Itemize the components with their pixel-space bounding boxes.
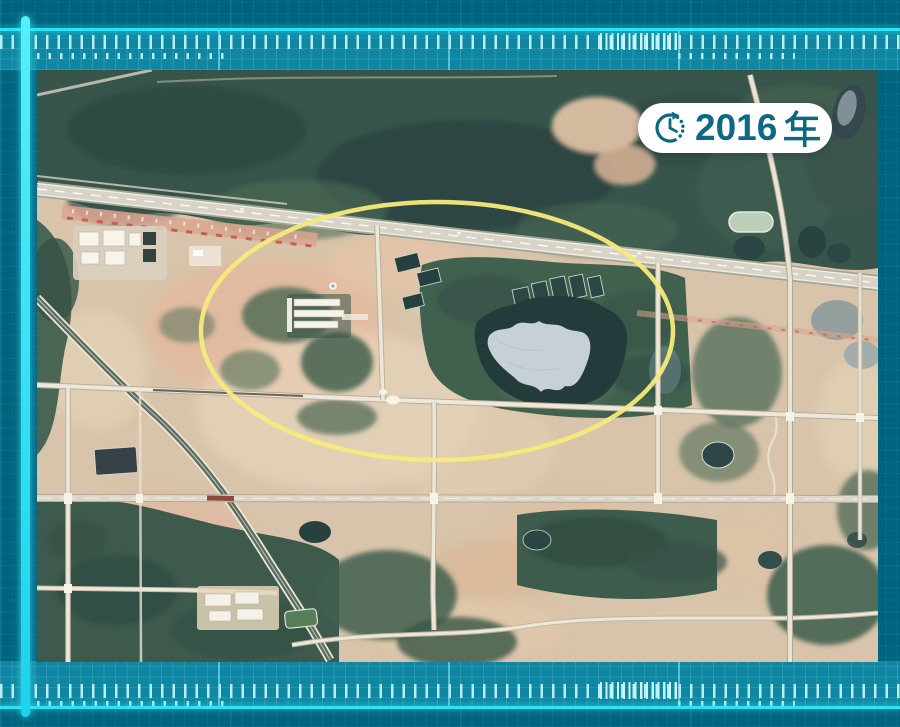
ruler-ticks-dense (600, 33, 678, 50)
band-separator (218, 661, 220, 709)
top-ruler-band (0, 28, 900, 70)
band-separator (678, 28, 680, 70)
band-separator (218, 28, 220, 70)
hud-frame: 2016 (0, 0, 900, 727)
year-badge: 2016 (638, 103, 832, 153)
year-suffix-glyph-nian (783, 110, 820, 147)
dotted-arc (676, 116, 685, 138)
ruler-ticks-short (37, 53, 225, 59)
ruler-ticks-short (678, 53, 795, 59)
ruler-ticks-dense (600, 682, 678, 699)
band-separator (448, 661, 450, 709)
satellite-terrain (37, 70, 878, 662)
band-separator (678, 661, 680, 709)
satellite-map: 2016 (37, 70, 878, 662)
ruler-ticks (0, 35, 900, 49)
bottom-ruler-band (0, 661, 900, 709)
frame-edge-line-bottom (0, 706, 900, 709)
accent-bar (21, 16, 30, 717)
haze-overlay (37, 70, 878, 662)
clock-history-icon (651, 109, 689, 147)
frame-edge-line-top (0, 28, 900, 31)
ruler-ticks (0, 684, 900, 698)
band-separator (448, 28, 450, 70)
clock-hands (670, 120, 677, 132)
year-label: 2016 (695, 109, 777, 146)
